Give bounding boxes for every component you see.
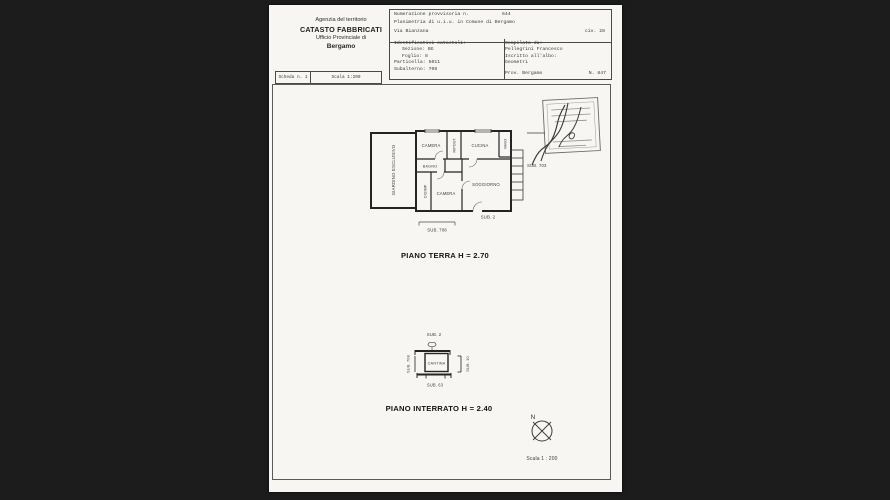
viewer-background: Agenzia del territorio CATASTO FABBRICAT… [0, 0, 890, 500]
piano-interrato-title: PIANO INTERRATO H = 2.40 [386, 404, 493, 413]
room-label-ripost: RIPOST. [452, 137, 456, 152]
room-label-cantina: CANTINA [428, 362, 446, 366]
room-label-disimp: DISIMP. [423, 184, 427, 198]
room-label-camera1: CAMERA [422, 143, 441, 148]
piano-interrato-plan: SUB. 2 CANTIN [405, 332, 470, 388]
room-label-giardino: GIARDINO ESCLUSIVO [391, 144, 396, 195]
room-label-soggiorno: SOGGIORNO [472, 182, 500, 187]
piano-terra-room-labels: GIARDINO ESCLUSIVO CAMERA RIPOST. CUCINA… [391, 137, 507, 198]
interrato-sub-right: SUB. 10 [465, 356, 470, 372]
piano-terra-sub-labels: SUB. 703 SUB. 2 SUB. 708 [419, 163, 547, 233]
piano-terra-title: PIANO TERRA H = 2.70 [401, 251, 489, 260]
room-label-vano: VANO [503, 139, 507, 150]
sub-label-right: SUB. 703 [527, 163, 547, 168]
interrato-sub-left: SUB. 708 [405, 355, 410, 373]
room-label-cucina: CUCINA [472, 143, 489, 148]
north-compass [532, 421, 552, 441]
interrato-sub-bottom: SUB. 63 [427, 383, 444, 388]
north-label: N [531, 414, 536, 421]
scanned-document-page: Agenzia del territorio CATASTO FABBRICAT… [269, 5, 622, 492]
floor-plan-canvas: GIARDINO ESCLUSIVO CAMERA RIPOST. CUCINA… [269, 5, 622, 492]
professional-stamp [543, 98, 601, 154]
interrato-sub-top: SUB. 2 [427, 332, 442, 337]
room-label-bagno: BAGNO [423, 165, 437, 169]
signature-scribble [527, 103, 581, 165]
room-label-camera2: CAMERA [437, 191, 456, 196]
sub-label-dimension: SUB. 708 [427, 228, 447, 233]
scale-label: Scala 1 : 200 [526, 456, 557, 462]
sub-label-inner: SUB. 2 [481, 215, 496, 220]
